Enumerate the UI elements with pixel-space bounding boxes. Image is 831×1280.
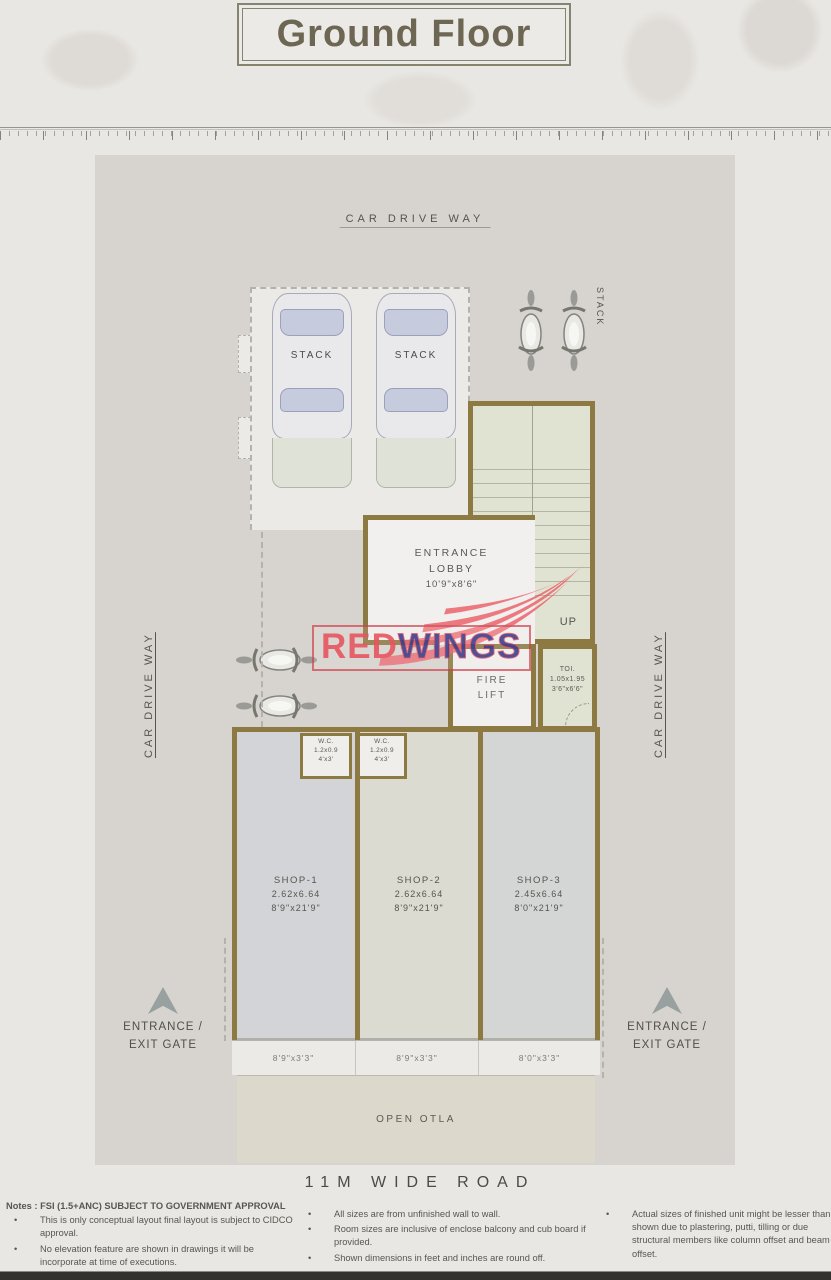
lobby-dim: 10'9"x8'6" — [368, 578, 535, 592]
brochure-page: Ground Floor CAR DRIVE WAY CAR DRIVE WAY… — [0, 0, 831, 1280]
notes-column-2: All sizes are from unfinished wall to wa… — [300, 1208, 592, 1267]
stack-bikes-label: STACK — [595, 287, 605, 357]
toilet-dim-ft: 3'6"x6'6" — [552, 686, 583, 693]
floor-title-box: Ground Floor — [237, 3, 571, 66]
car-icon: STACK — [272, 293, 352, 439]
note-item: Actual sizes of finished unit might be l… — [598, 1208, 831, 1261]
plot-boundary-dashed — [602, 938, 604, 1078]
wc-dim-ft: 4'x3' — [375, 756, 390, 763]
notes-header: Notes : FSI (1.5+ANC) SUBJECT TO GOVERNM… — [6, 1200, 298, 1213]
shop-name: SHOP-3 — [517, 875, 561, 886]
shops-block: SHOP-1 2.62x6.64 8'9"x21'9" SHOP-2 2.62x… — [232, 727, 600, 1040]
shop-dim-m: 2.45x6.64 — [483, 888, 595, 902]
stack-platform — [272, 438, 352, 488]
plot-boundary-dashed — [224, 938, 226, 1041]
floor-title-inner-border: Ground Floor — [242, 8, 566, 61]
wc-name: W.C. — [318, 738, 334, 745]
car-drive-way-left-label: CAR DRIVE WAY — [143, 583, 155, 758]
room-wc-1: W.C. 1.2x0.9 4'x3' — [300, 733, 352, 779]
car-rear-window — [280, 388, 344, 412]
room-shop-3: SHOP-3 2.45x6.64 8'0"x21'9" — [483, 732, 595, 1040]
shop-dim-ft: 8'9"x21'9" — [360, 902, 478, 916]
notes-column-1: Notes : FSI (1.5+ANC) SUBJECT TO GOVERNM… — [6, 1200, 298, 1271]
fire-lift-label: FIRE — [477, 675, 508, 686]
fire-lift-label-2: LIFT — [478, 690, 507, 701]
toilet-name: TOI. — [560, 666, 575, 673]
gate-arrow-icon — [652, 987, 682, 1014]
stack-parking-label: STACK — [273, 350, 351, 361]
stack-parking-label: STACK — [377, 350, 455, 361]
gate-label-2: EXIT GATE — [633, 1039, 701, 1051]
road-label: 11M WIDE ROAD — [170, 1174, 670, 1192]
plot-boundary-dashed — [261, 532, 263, 727]
gate-label: ENTRANCE / — [627, 1021, 707, 1033]
room-fire-lift: FIRE LIFT — [448, 644, 536, 731]
wall-segment — [363, 640, 435, 645]
entrance-exit-gate-left: ENTRANCE / EXIT GATE — [101, 987, 225, 1055]
room-toilet: TOI. 1.05x1.95 3'6"x6'6" — [538, 644, 597, 731]
stack-platform — [376, 438, 456, 488]
open-otla-label: OPEN OTLA — [376, 1112, 456, 1127]
shop-dim-ft: 8'0"x21'9" — [483, 902, 595, 916]
lobby-name: ENTRANCE — [415, 547, 489, 559]
shop-name: SHOP-1 — [274, 875, 318, 886]
motorbike-icon — [516, 289, 546, 373]
note-item: Room sizes are inclusive of enclose balc… — [300, 1223, 592, 1249]
motorbike-icon — [559, 289, 589, 373]
car-drive-way-right-label: CAR DRIVE WAY — [653, 583, 665, 758]
shop-dim-ft: 8'9"x21'9" — [237, 902, 355, 916]
gate-label: ENTRANCE / — [123, 1021, 203, 1033]
wc-dim-m: 1.2x0.9 — [314, 747, 338, 754]
car-windshield — [384, 309, 448, 336]
note-item: All sizes are from unfinished wall to wa… — [300, 1208, 592, 1221]
photo-bottom-edge — [0, 1272, 831, 1280]
page-title: Ground Floor — [277, 13, 532, 56]
shop-dim-m: 2.62x6.64 — [360, 888, 478, 902]
shop-front-dim: 8'9"x3'3" — [355, 1041, 478, 1075]
lobby-name-2: LOBBY — [429, 563, 474, 575]
gate-arrow-icon — [148, 987, 178, 1014]
gate-label-2: EXIT GATE — [129, 1039, 197, 1051]
motorbike-icon — [235, 690, 319, 721]
notes-section: Notes : FSI (1.5+ANC) SUBJECT TO GOVERNM… — [0, 1200, 831, 1270]
shop-front-dim: 8'9"x3'3" — [232, 1041, 355, 1075]
car-drive-way-top-label: CAR DRIVE WAY — [340, 213, 491, 228]
toilet-dim-m: 1.05x1.95 — [550, 676, 585, 683]
room-wc-2: W.C. 1.2x0.9 4'x3' — [357, 733, 407, 779]
open-otla-area: OPEN OTLA — [237, 1075, 595, 1163]
stair-up-label: UP — [560, 616, 577, 628]
wc-dim-m: 1.2x0.9 — [370, 747, 394, 754]
car-windshield — [280, 309, 344, 336]
wc-name: W.C. — [374, 738, 390, 745]
car-rear-window — [384, 388, 448, 412]
car-icon: STACK — [376, 293, 456, 439]
floor-plan: CAR DRIVE WAY CAR DRIVE WAY CAR DRIVE WA… — [95, 155, 735, 1165]
ruler-strip — [0, 127, 831, 140]
motorbike-icon — [235, 644, 319, 675]
door-swing-arc — [565, 703, 589, 727]
shop-name: SHOP-2 — [397, 875, 441, 886]
shop-dim-m: 2.62x6.64 — [237, 888, 355, 902]
note-item: This is only conceptual layout final lay… — [6, 1214, 298, 1240]
shop-front-otla-strip: 8'9"x3'3" 8'9"x3'3" 8'0"x3'3" — [232, 1040, 600, 1075]
room-entrance-lobby: ENTRANCE LOBBY 10'9"x8'6" — [363, 515, 535, 645]
shop-front-dim: 8'0"x3'3" — [478, 1041, 600, 1075]
note-item: Shown dimensions in feet and inches are … — [300, 1252, 592, 1265]
entrance-exit-gate-right: ENTRANCE / EXIT GATE — [605, 987, 729, 1055]
note-item: No elevation feature are shown in drawin… — [6, 1243, 298, 1269]
notes-column-3: Actual sizes of finished unit might be l… — [598, 1208, 831, 1263]
wc-dim-ft: 4'x3' — [319, 756, 334, 763]
